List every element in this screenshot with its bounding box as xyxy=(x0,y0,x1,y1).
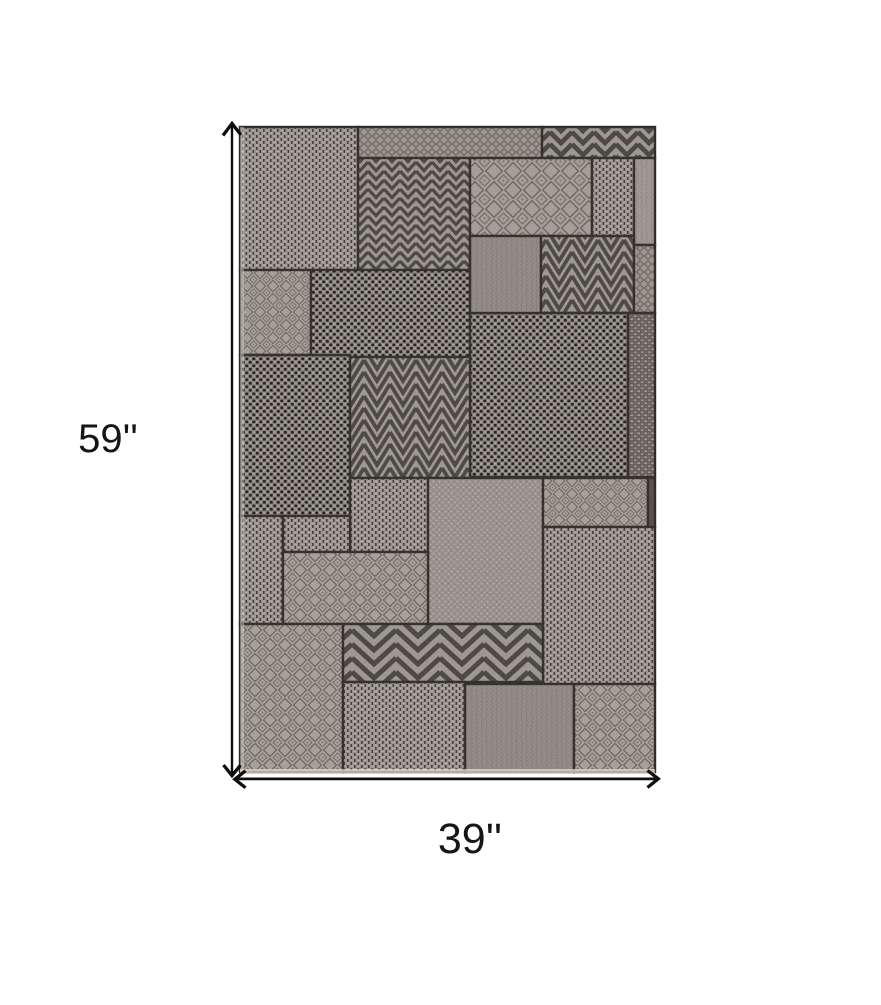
svg-text:39'': 39'' xyxy=(438,815,502,863)
svg-text:59'': 59'' xyxy=(78,417,138,461)
